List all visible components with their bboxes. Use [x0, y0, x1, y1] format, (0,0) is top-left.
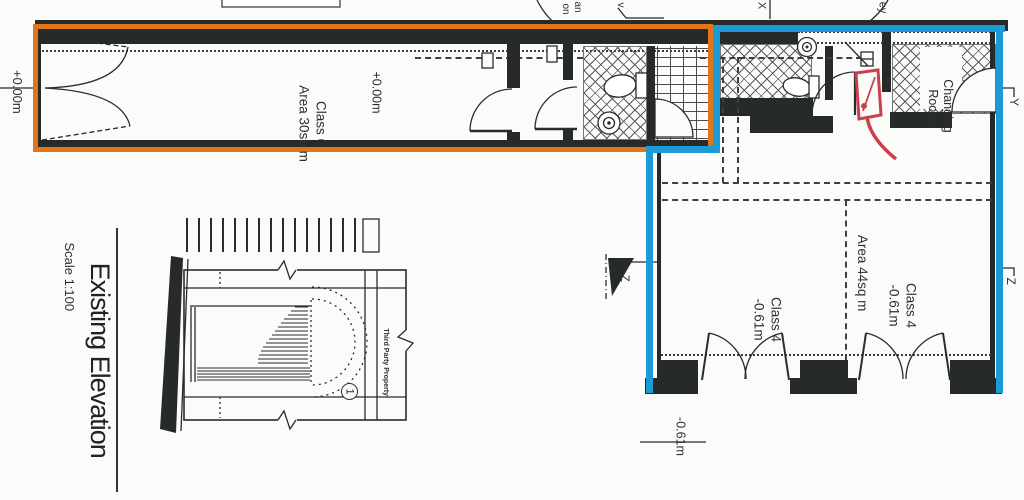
elevation-scale: Scale 1:100 [61, 233, 77, 321]
marker-z-left: Z [618, 270, 632, 286]
third-party-property-label: Third Party Property [381, 323, 389, 401]
changing-room-label: ChangingRoom [895, 74, 985, 138]
datum-bottom-label: -0.61m [673, 409, 688, 465]
marker-y: Y [1007, 94, 1021, 110]
elevation-title: Existing Elevation [84, 227, 116, 493]
fragment-ey: ey [875, 0, 888, 17]
red-marker-annotation [0, 0, 1024, 500]
class6-level-label: +0.00m [369, 62, 384, 124]
detail-reference-bubble: 1 [341, 383, 358, 400]
scanned-floor-plan-page: +0.00m Class 6Area 30sq m +0.00m Changin… [0, 0, 1024, 500]
class6-label: Class 6Area 30sq m [263, 78, 360, 170]
marker-x: X [754, 0, 767, 14]
fragment-an: an [571, 0, 583, 16]
fragment-v: v. [614, 0, 626, 14]
marker-z-right: Z [1004, 273, 1018, 289]
datum-left-label: +0.00m [9, 62, 25, 122]
class4-left-label: Class 4-0.61m [718, 289, 815, 351]
class4-right-label: Class 4-0.61m [853, 275, 950, 337]
fragment-on: on [559, 0, 571, 18]
detail-reference-number: 1 [343, 388, 356, 394]
title-underline [116, 228, 118, 492]
